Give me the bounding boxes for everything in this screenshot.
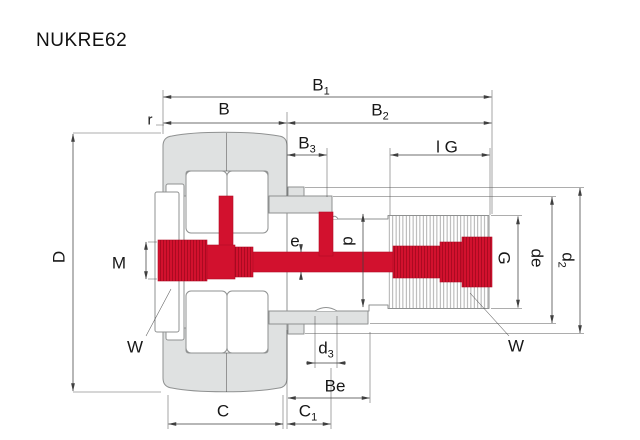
- nipple-hatch: [440, 242, 462, 282]
- dim-label-G: G: [496, 251, 513, 264]
- dim-label-de: de: [529, 249, 546, 268]
- dim-label-B1: B1: [312, 76, 329, 97]
- dim-label-e: e: [290, 233, 299, 250]
- collar-flange-top: [288, 187, 304, 196]
- collar-flange-bottom: [288, 324, 304, 334]
- roller-bottom-right: [227, 291, 268, 353]
- dim-label-r: r: [148, 113, 153, 128]
- dim-label-D: D: [51, 251, 68, 263]
- inner-ring-sleeve-top: [269, 196, 332, 213]
- dim-label-Be: Be: [325, 378, 346, 395]
- dim-label-M: M: [112, 255, 126, 272]
- grease-channel-radial-2: [319, 212, 333, 256]
- roller-bottom-left: [186, 291, 227, 353]
- bearing-dimension-diagram: NUKRE62 B1 B B2 r B3 l G D M e d G de d2…: [0, 0, 640, 440]
- nipple-hatch: [235, 247, 253, 277]
- nipple-hatch: [393, 246, 440, 278]
- dim-label-B: B: [218, 100, 229, 121]
- dim-label-d2: d2: [555, 252, 576, 268]
- part-number-title: NUKRE62: [36, 30, 127, 52]
- dim-label-B2: B2: [371, 101, 388, 122]
- dim-label-lG: l G: [436, 139, 458, 156]
- dim-label-C: C: [217, 403, 229, 420]
- dim-label-d: d: [341, 236, 358, 245]
- dim-label-B3: B3: [298, 134, 315, 155]
- dim-label-W-right: W: [508, 338, 524, 355]
- nipple-hatch: [462, 237, 492, 287]
- dim-label-d3: d3: [318, 339, 334, 360]
- cam-follower-cross-section: [0, 0, 640, 440]
- nipple-hatch: [158, 240, 207, 281]
- dim-label-W-left: W: [127, 339, 143, 356]
- eccentric-collar-bottom: [269, 311, 368, 324]
- dim-label-C1: C1: [299, 402, 317, 423]
- grease-nipple-left-step: [207, 245, 235, 279]
